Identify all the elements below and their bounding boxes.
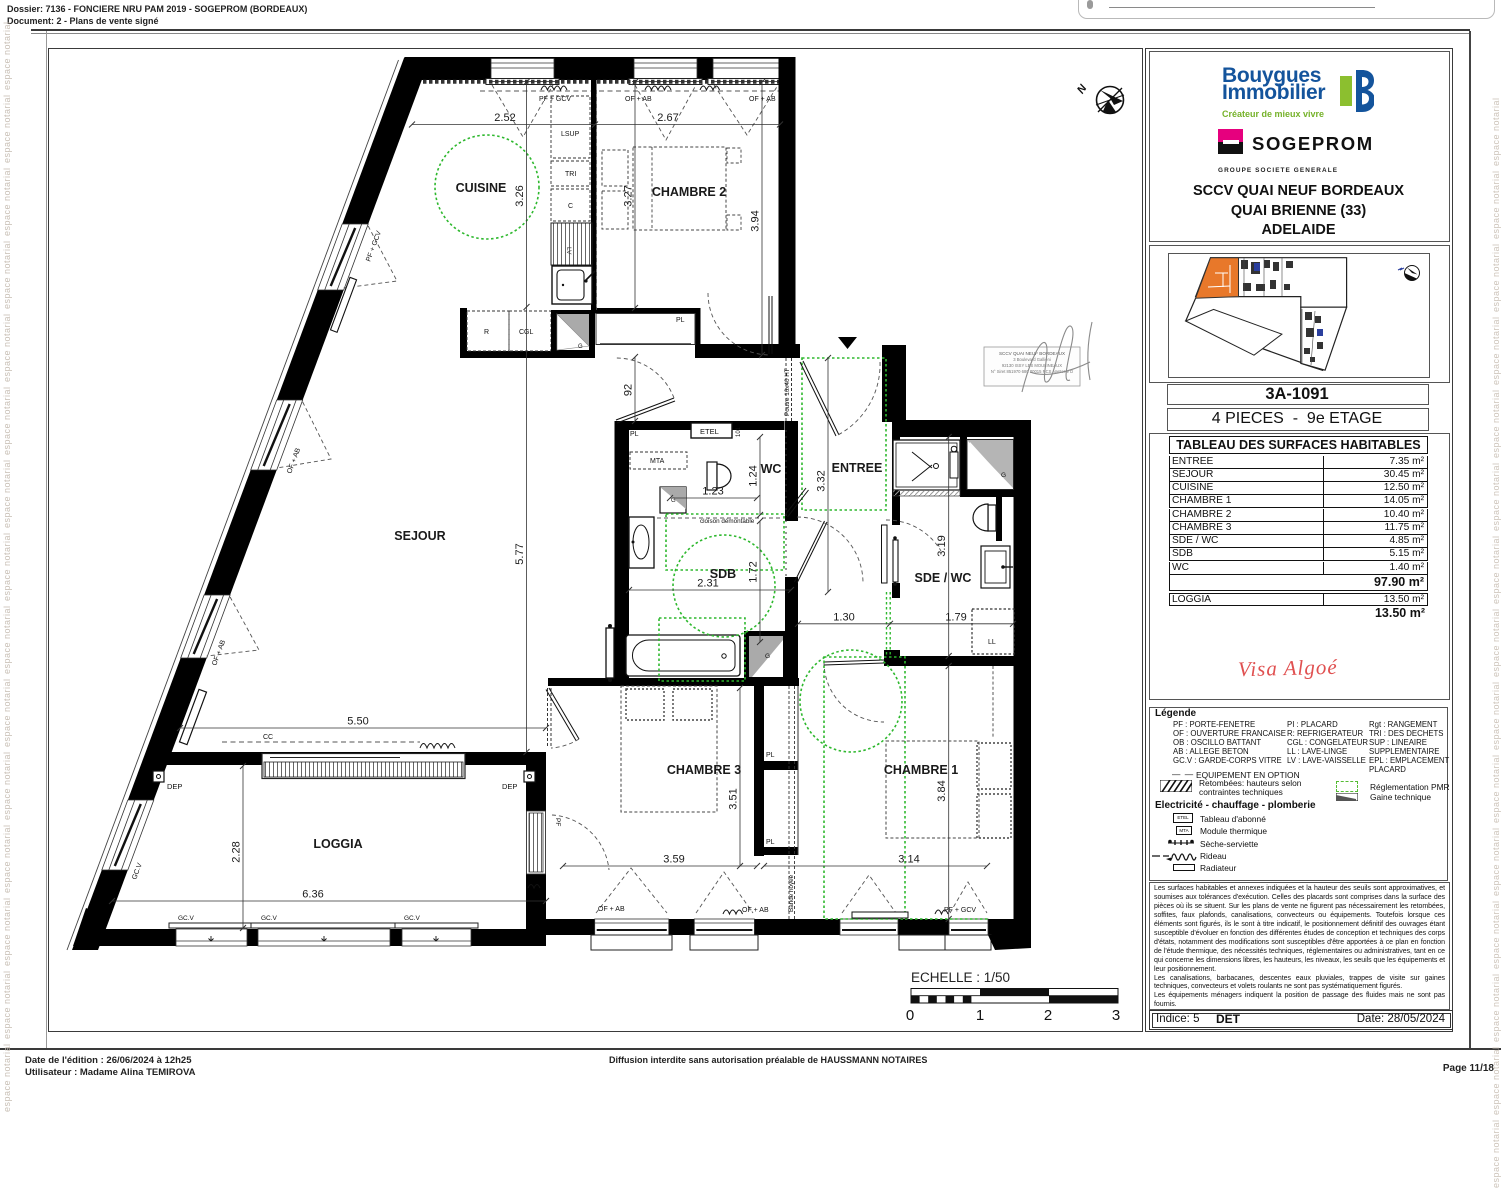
svg-text:OF + AB: OF + AB (598, 906, 625, 913)
svg-text:R: R (484, 329, 489, 336)
svg-text:92: 92 (623, 384, 635, 396)
svg-text:CHAMBRE 2: CHAMBRE 2 (652, 185, 726, 199)
svg-text:5.77: 5.77 (514, 543, 526, 564)
svg-text:CHAMBRE 3: CHAMBRE 3 (667, 763, 741, 777)
svg-text:3.27: 3.27 (623, 185, 635, 206)
svg-text:PF + GCV: PF + GCV (365, 230, 383, 263)
svg-text:LV: LV (565, 247, 572, 255)
svg-text:TRI: TRI (565, 171, 576, 178)
svg-text:1.79: 1.79 (945, 611, 966, 623)
svg-text:0: 0 (906, 1007, 914, 1024)
svg-text:GC.V: GC.V (261, 915, 278, 922)
svg-text:OF + AB: OF + AB (749, 96, 776, 103)
svg-text:GC.V: GC.V (404, 915, 421, 922)
svg-text:101: 101 (736, 426, 742, 437)
svg-text:OF + AB: OF + AB (742, 907, 769, 914)
svg-text:G: G (578, 344, 583, 350)
svg-text:OF + AB: OF + AB (286, 447, 302, 475)
svg-text:3.59: 3.59 (663, 854, 684, 866)
svg-text:WC: WC (761, 462, 782, 476)
svg-text:OF + AB: OF + AB (211, 639, 227, 667)
svg-text:LOGGIA: LOGGIA (313, 837, 362, 851)
svg-text:2.31: 2.31 (697, 578, 718, 590)
svg-text:3.26: 3.26 (514, 185, 526, 206)
svg-text:PL: PL (676, 317, 685, 324)
svg-text:ECHELLE : 1/50: ECHELLE : 1/50 (911, 970, 1010, 985)
svg-text:1: 1 (976, 1007, 984, 1024)
svg-text:DEP: DEP (167, 782, 182, 791)
svg-text:92130 ISSY LES MOULINEAUX: 92130 ISSY LES MOULINEAUX (1002, 363, 1062, 368)
svg-text:LSUP: LSUP (561, 131, 580, 138)
svg-text:MTA: MTA (650, 458, 665, 465)
svg-text:LL: LL (988, 639, 996, 646)
svg-text:PF + GCV: PF + GCV (539, 96, 571, 103)
svg-text:SEJOUR: SEJOUR (394, 529, 445, 543)
svg-text:1.23: 1.23 (702, 486, 723, 498)
svg-text:OF + AB: OF + AB (625, 96, 652, 103)
svg-text:SDE / WC: SDE / WC (915, 571, 972, 585)
svg-text:3.51: 3.51 (728, 788, 740, 809)
svg-text:1.30: 1.30 (833, 611, 854, 623)
svg-text:3.19: 3.19 (936, 535, 948, 556)
svg-text:6.36: 6.36 (302, 889, 323, 901)
svg-text:3.32: 3.32 (816, 470, 828, 491)
svg-text:CHAMBRE 1: CHAMBRE 1 (884, 763, 958, 777)
svg-text:C: C (568, 203, 573, 210)
svg-text:3: 3 (1112, 1007, 1120, 1024)
svg-text:PL: PL (766, 839, 775, 846)
svg-text:2: 2 (1044, 1007, 1052, 1024)
svg-text:PL: PL (630, 431, 639, 438)
svg-text:CC: CC (263, 734, 273, 741)
svg-text:5.50: 5.50 (347, 716, 368, 728)
svg-text:3.84: 3.84 (936, 780, 948, 801)
svg-text:DEP: DEP (502, 782, 517, 791)
svg-text:PF: PF (554, 818, 561, 826)
svg-text:1.72: 1.72 (748, 561, 760, 582)
svg-text:N: N (1075, 82, 1090, 96)
svg-text:GC.V: GC.V (131, 862, 144, 881)
svg-text:G: G (765, 653, 770, 660)
svg-text:2.28: 2.28 (231, 841, 243, 862)
svg-text:3.14: 3.14 (898, 854, 919, 866)
svg-text:CUISINE: CUISINE (456, 181, 507, 195)
svg-text:cloison démontable: cloison démontable (700, 518, 755, 525)
svg-text:GC.V: GC.V (178, 915, 195, 922)
svg-text:Poutre 16x40 HT: Poutre 16x40 HT (784, 368, 791, 416)
svg-text:PL: PL (766, 752, 775, 759)
svg-text:G: G (671, 498, 676, 504)
svg-text:Bande noyée: Bande noyée (788, 874, 795, 912)
svg-text:SCCV QUAI NEUF BORDEAUX: SCCV QUAI NEUF BORDEAUX (999, 351, 1065, 356)
svg-text:ETEL: ETEL (700, 427, 719, 436)
svg-text:G: G (1001, 472, 1006, 479)
svg-text:3.94: 3.94 (750, 210, 762, 231)
svg-text:2.52: 2.52 (494, 112, 515, 124)
svg-text:2.67: 2.67 (657, 112, 678, 124)
svg-text:ENTREE: ENTREE (832, 461, 883, 475)
svg-text:1.24: 1.24 (748, 465, 760, 486)
